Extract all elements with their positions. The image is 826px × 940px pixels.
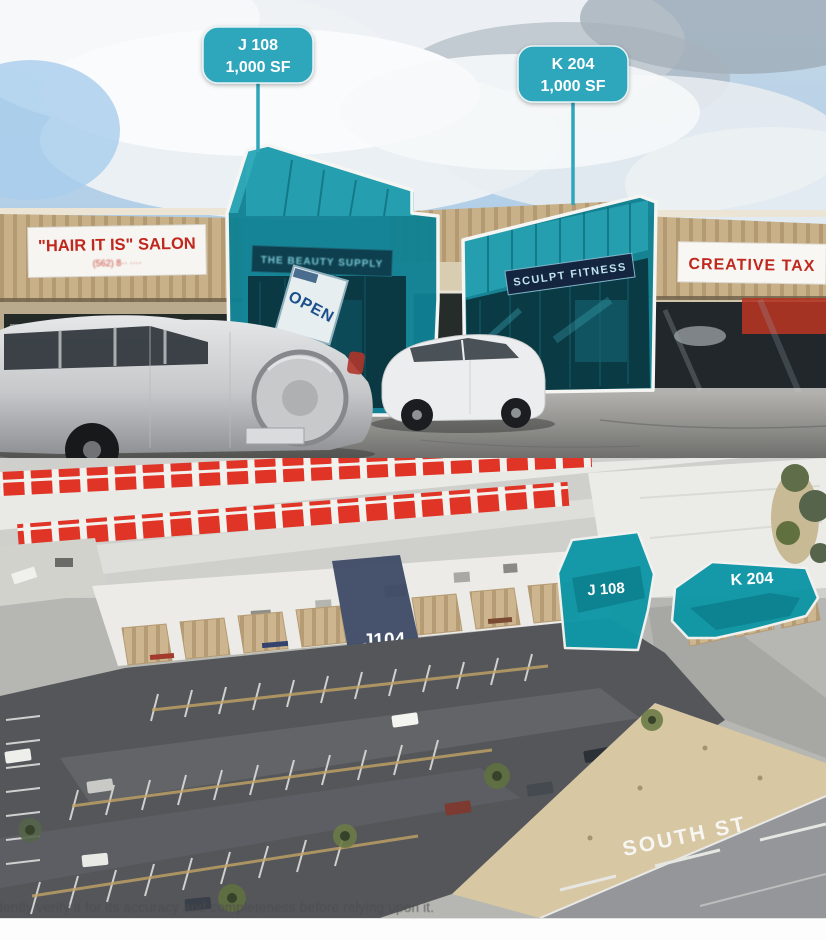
salon-phone-text: (562) 8·· ···· xyxy=(93,258,142,269)
callout-unit-label: K 204 xyxy=(552,56,595,73)
flyer-page: "HAIR IT IS" SALON (562) 8·· ···· CREATI… xyxy=(0,0,826,940)
salon-sign: "HAIR IT IS" SALON (562) 8·· ···· xyxy=(28,224,207,277)
callout-size-label: 1,000 SF xyxy=(226,59,291,76)
palm-tree-icon xyxy=(333,824,357,848)
bottom-margin xyxy=(0,918,826,940)
aerial-unit-j108: J 108 xyxy=(558,532,654,650)
salon-sign-text: "HAIR IT IS" SALON xyxy=(38,235,196,256)
k204-label: K 204 xyxy=(730,570,774,589)
j108-label: J 108 xyxy=(587,580,626,600)
disclaimer-text: independently verify it for its accuracy… xyxy=(0,900,826,915)
aerial-photo: J104 xyxy=(0,458,826,918)
tax-sign-text: CREATIVE TAX xyxy=(688,256,815,275)
callout-unit-label: J 108 xyxy=(238,37,278,54)
palm-tree-icon xyxy=(18,818,42,842)
tail-light xyxy=(347,351,366,375)
street-photo: "HAIR IT IS" SALON (562) 8·· ···· CREATI… xyxy=(0,0,826,458)
right-building: CREATIVE TAX xyxy=(640,210,826,406)
beauty-supply-sign: THE BEAUTY SUPPLY xyxy=(252,246,393,277)
palm-tree-icon xyxy=(641,709,663,731)
tax-sign: CREATIVE TAX xyxy=(678,242,826,285)
callout-size-label: 1,000 SF xyxy=(541,78,606,95)
palm-tree-icon xyxy=(484,763,510,789)
